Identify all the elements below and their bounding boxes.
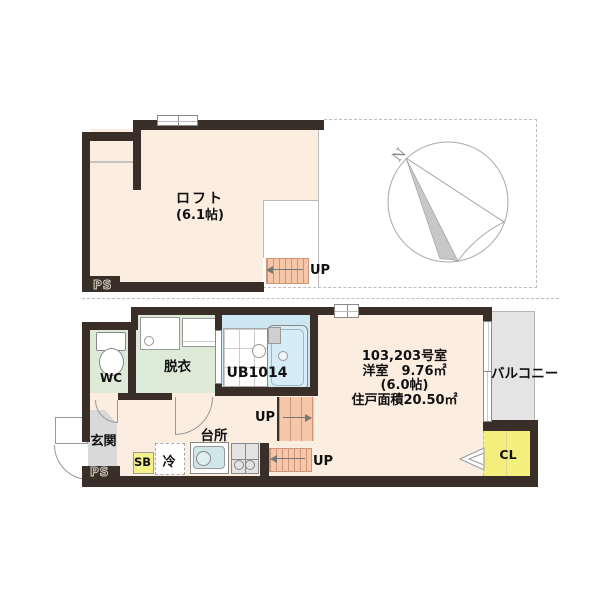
stairs-lower-arrow bbox=[274, 458, 305, 459]
f1-ps-label: PS bbox=[90, 465, 109, 479]
washer-pan-icon bbox=[140, 317, 180, 350]
room-tatami: (6.0帖) bbox=[324, 379, 485, 394]
dressing-label: 脱衣 bbox=[150, 355, 205, 375]
loft-closet-pipe bbox=[90, 161, 133, 163]
wc-bottom-wall bbox=[118, 393, 172, 400]
stairs-upper-arrowhead bbox=[305, 414, 312, 422]
loft-notch-line-left bbox=[263, 200, 264, 258]
kitchen-door-leaf bbox=[175, 397, 176, 434]
bath-handle-icon bbox=[278, 351, 288, 361]
bath-faucet-icon bbox=[268, 327, 281, 344]
loft-dash-right bbox=[536, 119, 537, 288]
f1-top-window bbox=[334, 304, 359, 318]
f1-wall-bottom bbox=[82, 476, 538, 487]
loft-wall-left bbox=[82, 132, 90, 292]
stove-icon bbox=[231, 443, 259, 474]
shoe-box-label: SB bbox=[133, 455, 152, 469]
bath-right-wall bbox=[310, 307, 318, 396]
fridge-label: 冷 bbox=[155, 451, 183, 470]
kitchen-label: 台所 bbox=[198, 424, 230, 444]
f1-wall-left bbox=[82, 322, 90, 442]
loft-window bbox=[157, 115, 198, 126]
stairs-upper-up-label: UP bbox=[255, 410, 275, 425]
sink-unit-icon bbox=[190, 442, 229, 474]
closet-label: CL bbox=[494, 447, 522, 462]
stairs-lower-arrowhead bbox=[270, 455, 277, 463]
loft-wall-interior bbox=[133, 128, 141, 190]
floor-plan: N ロフト (6.1帖) UP PS bbox=[0, 0, 600, 600]
loft-ps-label: PS bbox=[93, 278, 112, 292]
room-total-area: 住戸面積20.50㎡ bbox=[324, 394, 485, 409]
bath-bottom-wall bbox=[215, 387, 318, 396]
closet-right-wall bbox=[530, 420, 538, 480]
loft-stairs-arrow bbox=[270, 269, 303, 270]
room-number: 103,203号室 bbox=[324, 350, 485, 365]
svg-text:N: N bbox=[390, 145, 410, 165]
loft-up-label: UP bbox=[310, 263, 330, 278]
dressing-bath-wall-top bbox=[215, 315, 222, 331]
wc-label: WC bbox=[96, 371, 126, 385]
entrance-label: 玄関 bbox=[88, 430, 119, 449]
room-right-wall-top bbox=[483, 307, 492, 321]
loft-size-label: (6.1帖) bbox=[160, 204, 240, 223]
loft-dash-top bbox=[324, 119, 537, 120]
bath-label: UB1014 bbox=[226, 365, 288, 381]
loft-notch-line-top bbox=[263, 200, 318, 201]
bath-door bbox=[215, 330, 222, 384]
roof-outline-dash bbox=[82, 298, 559, 299]
kitchen-stair-wall bbox=[260, 443, 269, 477]
wc-dressing-wall bbox=[128, 322, 136, 400]
balcony-label: バルコニー bbox=[491, 362, 558, 382]
loft-stairs-arrowhead bbox=[266, 266, 273, 274]
closet-opening-dash bbox=[483, 431, 484, 476]
vanity-icon bbox=[182, 318, 217, 347]
room-type-area: 洋室 9.76㎡ bbox=[324, 365, 485, 380]
room-info-block: 103,203号室 洋室 9.76㎡ (6.0帖) 住戸面積20.50㎡ bbox=[324, 350, 485, 408]
wc-door-leaf bbox=[117, 400, 118, 422]
bath-drain-icon bbox=[252, 344, 266, 358]
closet-folding-door-icon bbox=[456, 446, 486, 472]
compass-north-icon: N bbox=[382, 136, 518, 272]
loft-dash-bottom bbox=[263, 287, 537, 288]
stairs-lower-up-label: UP bbox=[313, 454, 333, 469]
